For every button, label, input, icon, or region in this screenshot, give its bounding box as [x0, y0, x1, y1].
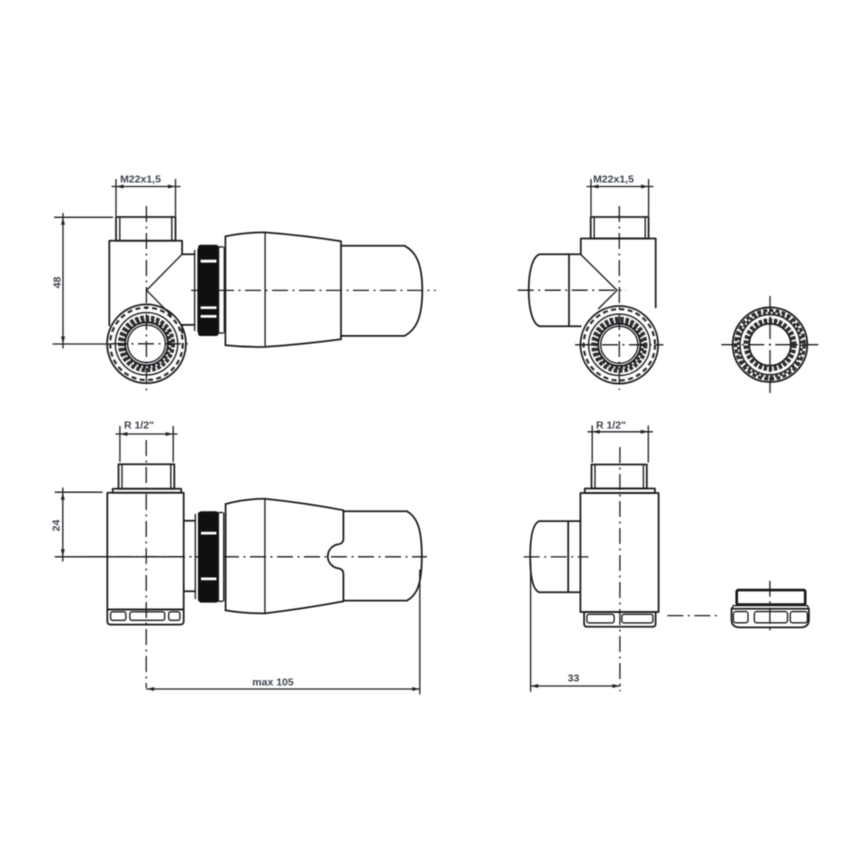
svg-text:R 1/2": R 1/2" — [596, 420, 626, 432]
svg-text:24: 24 — [51, 520, 63, 532]
svg-text:max 105: max 105 — [252, 677, 294, 689]
svg-text:M22x1,5: M22x1,5 — [120, 174, 161, 186]
svg-text:M22x1,5: M22x1,5 — [593, 174, 634, 186]
svg-text:R 1/2": R 1/2" — [124, 420, 154, 432]
svg-text:48: 48 — [52, 277, 64, 289]
svg-text:33: 33 — [568, 673, 580, 685]
